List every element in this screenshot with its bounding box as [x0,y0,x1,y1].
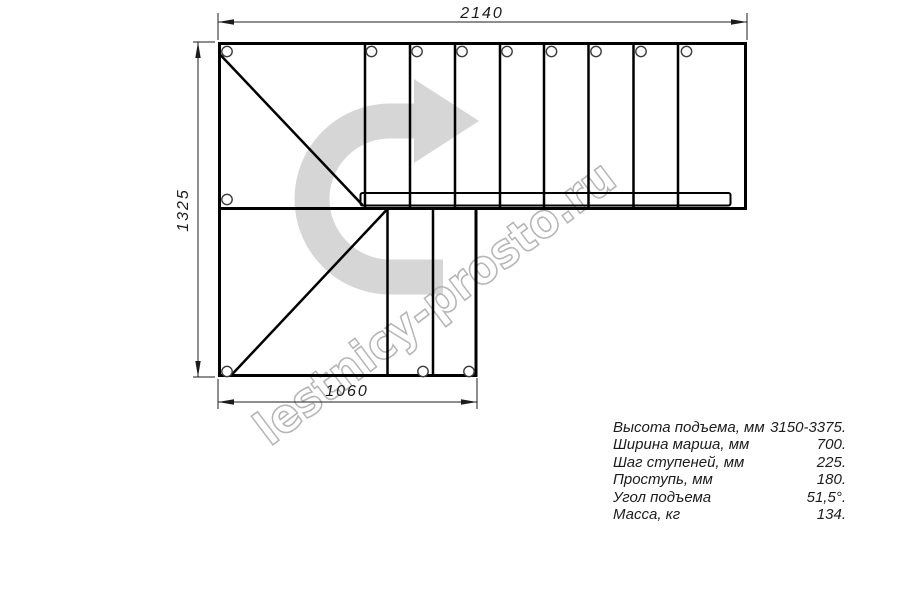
dimension-arrow [461,399,477,404]
spec-label: Ширина марша, мм [613,436,749,453]
spec-row-width: Ширина марша, мм 700. [613,436,846,453]
mounting-hole [418,366,428,376]
mounting-hole [222,46,232,56]
dimension-top: 2140 [218,5,747,40]
mounting-hole [457,46,467,56]
spec-value: 180. [817,471,846,488]
mounting-hole [366,46,376,56]
dimension-arrow [218,399,234,404]
mounting-hole [546,46,556,56]
dimension-arrow [218,19,234,24]
mounting-hole [636,46,646,56]
spec-value: 225. [817,454,846,471]
spec-row-step: Шаг ступеней, мм 225. [613,454,846,471]
spec-row-tread: Проступь, мм 180. [613,471,846,488]
mounting-hole [591,46,601,56]
mounting-holes [222,46,692,376]
spec-row-mass: Масса, кг 134. [613,506,846,523]
direction-arrow-head [414,79,479,163]
dimension-arrow [731,19,747,24]
spec-row-height: Высота подъема, мм 3150-3375. [613,419,846,436]
spec-label: Шаг ступеней, мм [613,454,744,471]
spec-label: Угол подъема [613,489,711,506]
specs-table: Высота подъема, мм 3150-3375. Ширина мар… [613,419,846,523]
dimension-bottom-label: 1060 [325,383,369,400]
staircase-plan-page: lestnicy-prosto.ru [0,0,900,600]
spec-value: 134. [817,506,846,523]
mounting-hole [681,46,691,56]
spec-label: Проступь, мм [613,471,713,488]
mounting-hole [502,46,512,56]
staircase [220,44,746,376]
mounting-hole [222,194,232,204]
spec-label: Масса, кг [613,506,680,523]
dimension-arrow [195,361,200,377]
dimension-left: 1325 [175,42,215,377]
spec-value: 3150-3375. [770,419,846,436]
spec-value: 700. [817,436,846,453]
spec-value: 51,5°. [807,489,846,506]
mounting-hole [464,366,474,376]
spec-label: Высота подъема, мм [613,419,765,436]
spec-row-angle: Угол подъема 51,5°. [613,489,846,506]
dimension-top-label: 2140 [459,5,504,22]
dimension-arrow [195,42,200,58]
mounting-hole [412,46,422,56]
dimension-left-label: 1325 [175,188,192,232]
mounting-hole [222,366,232,376]
